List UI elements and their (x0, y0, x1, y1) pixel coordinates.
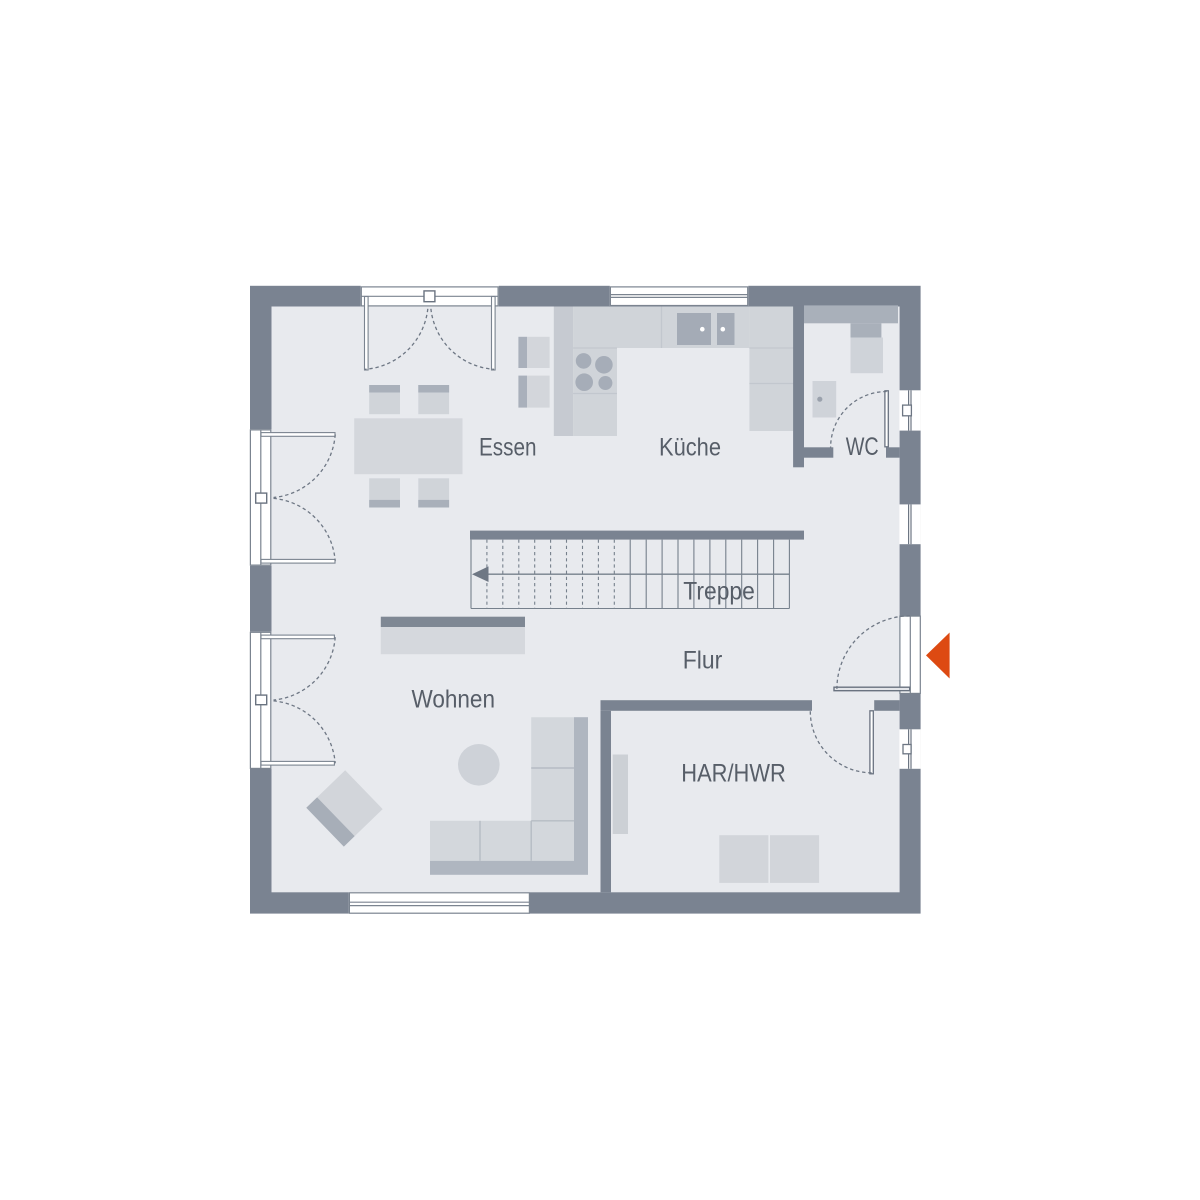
svg-text:HAR/HWR: HAR/HWR (681, 759, 786, 787)
svg-text:Wohnen: Wohnen (412, 686, 496, 714)
svg-text:WC: WC (846, 433, 879, 461)
svg-text:Essen: Essen (479, 433, 537, 461)
svg-text:Flur: Flur (683, 647, 723, 675)
svg-text:Küche: Küche (659, 433, 721, 461)
svg-text:Treppe: Treppe (683, 577, 755, 605)
